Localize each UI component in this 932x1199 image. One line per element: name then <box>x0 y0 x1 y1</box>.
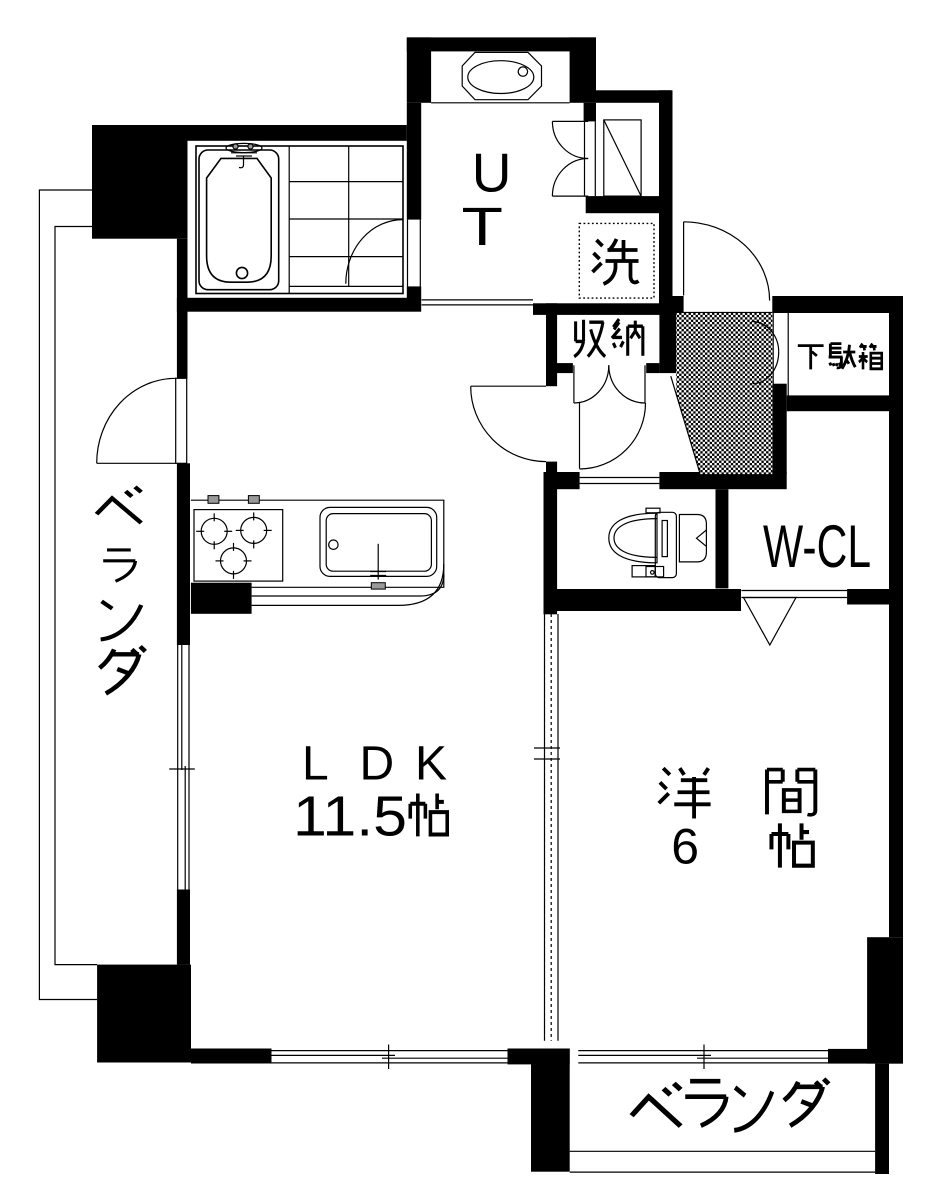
svg-text:U: U <box>472 142 512 204</box>
svg-text:11.5: 11.5 <box>293 785 407 849</box>
svg-text:T: T <box>462 197 504 257</box>
svg-text:K: K <box>415 738 447 791</box>
svg-text:6: 6 <box>671 818 699 874</box>
svg-text:L: L <box>302 738 329 791</box>
svg-text:W-CL: W-CL <box>763 513 871 580</box>
svg-text:D: D <box>360 738 395 791</box>
